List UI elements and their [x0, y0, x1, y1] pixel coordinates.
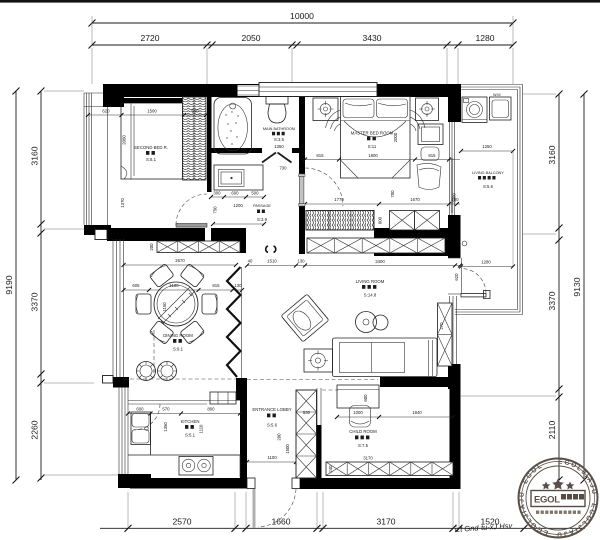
svg-text:S:14.8: S:14.8 [364, 293, 377, 298]
svg-text:1250: 1250 [482, 144, 492, 149]
svg-text:3160: 3160 [547, 145, 557, 164]
svg-text:2050: 2050 [241, 33, 260, 43]
svg-text:3430: 3430 [362, 33, 381, 43]
svg-text:SECOND BED R.: SECOND BED R. [134, 145, 168, 150]
svg-text:200: 200 [149, 243, 154, 251]
svg-text:S:11: S:11 [368, 144, 377, 149]
svg-text:3170: 3170 [376, 517, 395, 527]
svg-text:500: 500 [251, 191, 259, 196]
svg-text:2110: 2110 [547, 421, 557, 440]
svg-text:600: 600 [363, 394, 368, 402]
svg-text:DINING ROOM: DINING ROOM [163, 333, 193, 338]
svg-text:1500: 1500 [285, 444, 290, 454]
svg-text:1350: 1350 [274, 144, 284, 149]
svg-text:1510: 1510 [267, 259, 277, 264]
svg-text:S:7.5: S:7.5 [358, 443, 369, 448]
svg-text:130: 130 [297, 259, 305, 264]
svg-text:40: 40 [248, 259, 253, 264]
svg-text:300: 300 [213, 191, 221, 196]
svg-text:270: 270 [439, 322, 444, 330]
svg-text:1350: 1350 [163, 422, 168, 432]
svg-text:LIVING BALCONY: LIVING BALCONY [472, 171, 504, 175]
svg-text:S:3.9: S:3.9 [257, 217, 268, 222]
svg-text:LIVING ROOM: LIVING ROOM [356, 279, 385, 284]
svg-text:1150: 1150 [162, 302, 167, 312]
svg-text:1370: 1370 [120, 198, 125, 208]
svg-text:2260: 2260 [30, 420, 40, 439]
svg-text:620: 620 [454, 273, 459, 281]
svg-text:KITCHEN: KITCHEN [181, 419, 200, 424]
svg-text:240: 240 [328, 465, 333, 473]
svg-text:200: 200 [277, 433, 282, 441]
svg-text:2670: 2670 [175, 258, 185, 263]
svg-text:3370: 3370 [547, 291, 557, 310]
svg-text:1280: 1280 [475, 33, 494, 43]
svg-text:2060: 2060 [122, 135, 127, 145]
svg-text:700: 700 [390, 190, 395, 198]
svg-text:2000: 2000 [393, 132, 398, 142]
svg-text:S:9.1: S:9.1 [173, 347, 184, 352]
svg-text:9190: 9190 [4, 275, 14, 294]
svg-text:1800: 1800 [368, 153, 378, 158]
svg-text:1110: 1110 [199, 424, 204, 434]
svg-text:W.M: W.M [493, 93, 501, 97]
svg-text:2720: 2720 [140, 33, 159, 43]
svg-text:S:5.6: S:5.6 [267, 423, 278, 428]
svg-text:1000: 1000 [353, 410, 363, 415]
svg-text:3170: 3170 [363, 456, 373, 461]
svg-text:3160: 3160 [30, 146, 40, 165]
svg-text:1840: 1840 [412, 410, 422, 415]
svg-text:S:8.1: S:8.1 [146, 157, 157, 162]
svg-text:3400: 3400 [375, 259, 385, 264]
svg-text:CHILD ROOM: CHILD ROOM [349, 429, 377, 434]
svg-text:750: 750 [213, 206, 218, 214]
svg-text:1200: 1200 [233, 203, 243, 208]
svg-text:815: 815 [428, 153, 436, 158]
svg-text:9130: 9130 [572, 277, 582, 296]
svg-text:3300: 3300 [452, 193, 457, 203]
svg-text:MASTER BED ROOM: MASTER BED ROOM [351, 131, 394, 136]
svg-text:815: 815 [316, 153, 324, 158]
svg-text:10000: 10000 [290, 11, 314, 21]
svg-text:1280: 1280 [481, 260, 491, 265]
svg-text:600: 600 [378, 216, 383, 224]
svg-text:S:3.5: S:3.5 [274, 137, 285, 142]
svg-text:MAIN BATHROOM: MAIN BATHROOM [263, 127, 295, 131]
svg-text:3370: 3370 [30, 292, 40, 311]
svg-text:730: 730 [279, 166, 287, 171]
svg-text:1500: 1500 [147, 109, 157, 114]
svg-text:1670: 1670 [410, 197, 420, 202]
svg-text:530: 530 [303, 410, 311, 415]
svg-text:EGOL: EGOL [534, 495, 560, 506]
svg-text:800: 800 [207, 407, 215, 412]
svg-text:PASSAGE: PASSAGE [253, 204, 271, 208]
svg-text:580: 580 [191, 109, 199, 114]
svg-text:600: 600 [136, 407, 144, 412]
svg-text:620: 620 [102, 109, 110, 114]
svg-text:S:5.1: S:5.1 [185, 433, 196, 438]
svg-text:2570: 2570 [172, 517, 191, 527]
svg-text:600: 600 [231, 191, 239, 196]
svg-text:S:5.6: S:5.6 [483, 184, 494, 189]
svg-text:130: 130 [234, 283, 242, 288]
svg-text:1100: 1100 [267, 455, 277, 460]
svg-text:ENTRANCE LOBBY: ENTRANCE LOBBY [252, 407, 291, 412]
svg-text:815: 815 [212, 283, 220, 288]
svg-text:605: 605 [132, 283, 140, 288]
svg-text:570: 570 [162, 407, 170, 412]
